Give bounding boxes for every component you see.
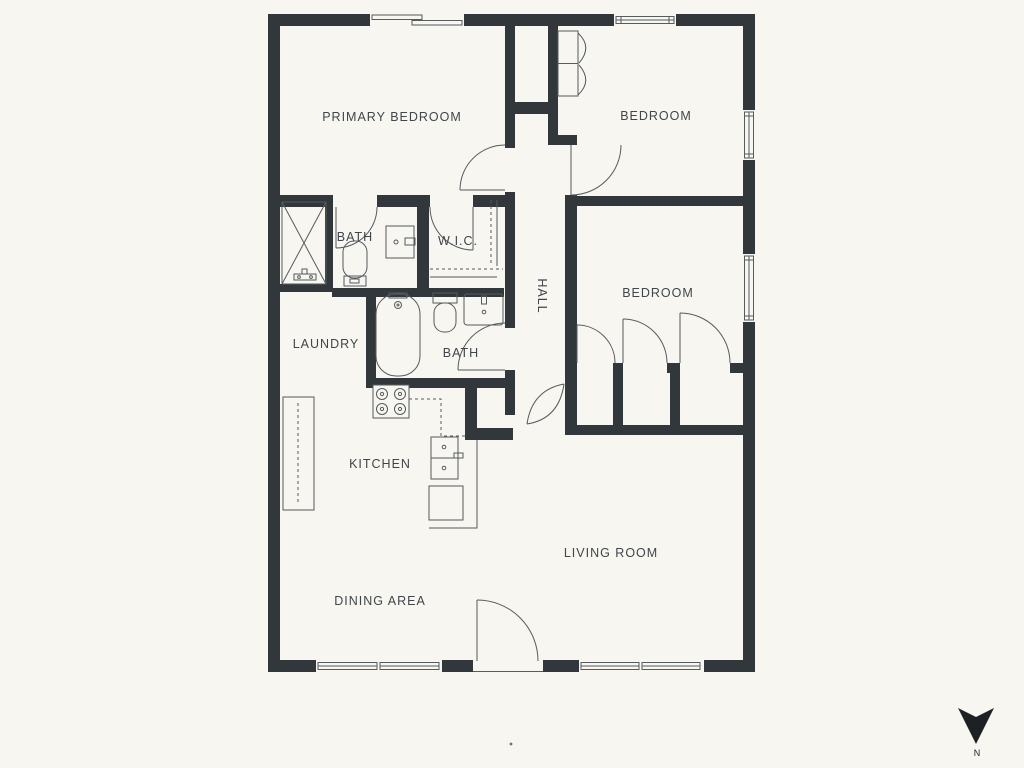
room-label-dining-area: DINING AREA xyxy=(334,594,426,608)
room-label-bedroom-mid: BEDROOM xyxy=(622,286,694,300)
page-dot xyxy=(510,743,513,746)
room-label-wic: W.I.C. xyxy=(438,234,478,248)
room-label-bath-lower: BATH xyxy=(443,346,479,360)
room-label-bath-upper: BATH xyxy=(337,230,373,244)
north-label: N xyxy=(974,748,981,758)
room-label-living-room: LIVING ROOM xyxy=(564,546,658,560)
floor-plan: PRIMARY BEDROOM BEDROOM BATH W.I.C. HALL… xyxy=(0,0,1024,768)
window xyxy=(745,112,754,158)
window xyxy=(745,256,754,320)
room-label-primary-bedroom: PRIMARY BEDROOM xyxy=(322,110,462,124)
window xyxy=(616,17,674,24)
room-label-hall: HALL xyxy=(535,278,549,313)
room-label-kitchen: KITCHEN xyxy=(349,457,411,471)
stove xyxy=(373,385,409,418)
room-label-bedroom-top: BEDROOM xyxy=(620,109,692,123)
room-label-laundry: LAUNDRY xyxy=(293,337,360,351)
